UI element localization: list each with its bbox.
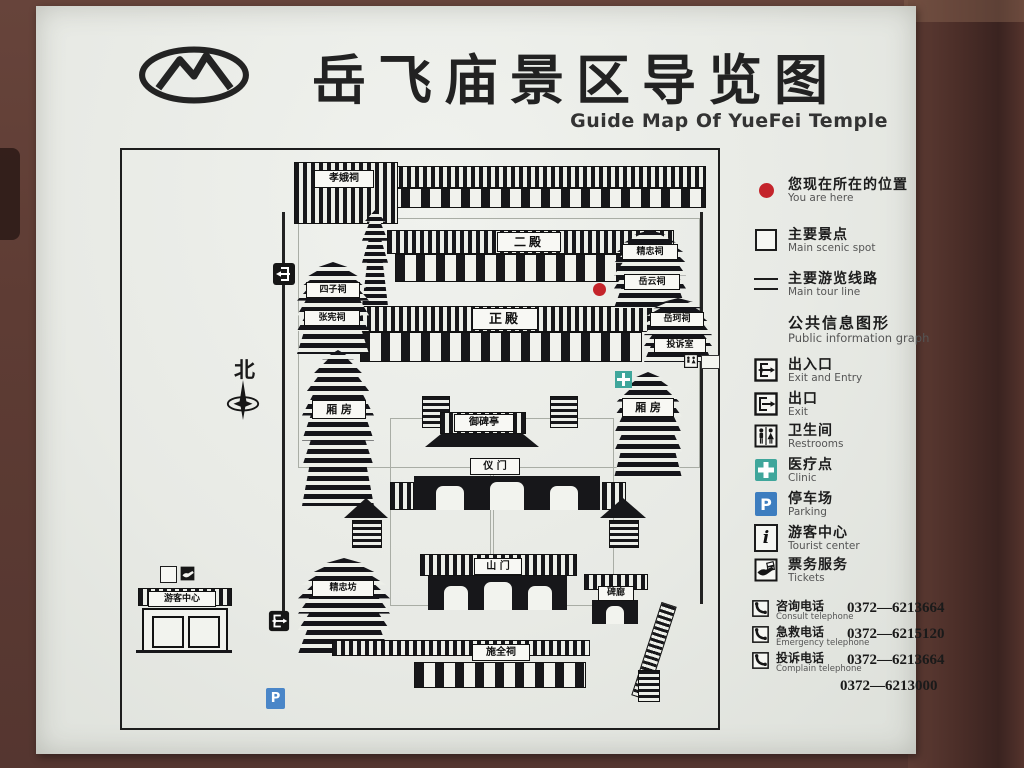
page-title-english: Guide Map Of YueFei Temple (570, 110, 888, 132)
legend-main-scenic-spot: 主要景点 Main scenic spot (754, 228, 875, 254)
temple-logo-mountain-icon (138, 44, 250, 106)
legend-cn: 停车场 (788, 492, 833, 507)
tickets-icon (754, 558, 778, 582)
flank-tower-east (550, 396, 578, 428)
exit-icon (754, 392, 778, 416)
building-shanmen-body (428, 576, 567, 610)
visitor-center-body (142, 608, 228, 652)
exit-entry-icon-map-south (268, 610, 290, 632)
pavilion-west-body (352, 520, 382, 548)
info-header-cn: 公共信息图形 (788, 316, 929, 332)
phone-emergency: 急救电话 Emergency telephone 0372—6215120 (752, 626, 945, 648)
photo-of-guide-map-sign: { "title": { "cn": "岳飞庙景区导览图", "en": "Gu… (0, 0, 1024, 768)
visitor-center-window-left (152, 616, 184, 648)
label-yuekeci: 岳珂祠 (650, 312, 704, 327)
phone-en: Emergency telephone (776, 639, 840, 648)
legend-en: Restrooms (788, 439, 844, 451)
compass-star-icon (224, 378, 262, 422)
phone-cn: 投诉电话 (776, 652, 840, 665)
legend-restrooms: 卫生间 Restrooms (754, 424, 844, 450)
phone-number-extra: 0372—6213000 (840, 678, 938, 695)
phone-en: Complain telephone (776, 665, 840, 674)
legend-cn: 主要景点 (788, 228, 875, 243)
phone-en: Consult telephone (776, 613, 840, 622)
phone-cn: 咨询电话 (776, 600, 840, 613)
phone-number: 0372—6213664 (847, 600, 945, 617)
legend-en: Clinic (788, 473, 833, 485)
legend-cn: 出入口 (788, 358, 862, 373)
info-icon-map (160, 566, 177, 583)
label-xiangfang-east: 厢 房 (622, 398, 674, 417)
label-zhangxianci: 张宪祠 (304, 310, 360, 326)
exit-icon-map-west (272, 262, 296, 286)
map-note-box (701, 355, 720, 369)
label-shanmen: 山 门 (474, 558, 522, 575)
legend-en: Tickets (788, 573, 848, 585)
label-jingzhongfang: 精忠坊 (312, 580, 374, 597)
shanmen-arch-right (528, 586, 552, 610)
parking-icon-map: P (266, 688, 285, 709)
legend-en: Exit (788, 407, 818, 419)
label-sizici: 四子祠 (306, 282, 360, 298)
label-eastgate: 碑廊 (598, 586, 634, 601)
yimen-arch-right (550, 486, 578, 510)
label-yueyunci: 岳云祠 (624, 274, 680, 290)
legend-en: Tourist center (788, 541, 860, 553)
legend-cn: 游客中心 (788, 526, 860, 541)
phone-icon (752, 600, 769, 617)
legend-en: Exit and Entry (788, 373, 862, 385)
yimen-arch-left (436, 486, 464, 510)
pavilion-east (600, 498, 646, 550)
legend-parking: P 停车场 Parking (754, 492, 833, 518)
sign-frame-scuff-mark (0, 148, 20, 240)
legend-you-are-here: 您现在所在的位置 You are here (754, 178, 908, 204)
label-zhengdian: 正殿 (472, 308, 538, 330)
yimen-arch-center (490, 482, 524, 510)
legend-cn: 票务服务 (788, 558, 848, 573)
sign-frame-corner-highlight (904, 0, 1024, 22)
eastgate-arch (606, 606, 624, 624)
legend-en: Main tour line (788, 287, 878, 299)
label-yimen: 仪 门 (470, 458, 520, 475)
legend-exit-entry: 出入口 Exit and Entry (754, 358, 862, 384)
building-shiquanci-body (414, 662, 586, 688)
legend-tickets: 票务服务 Tickets (754, 558, 848, 584)
legend-tourist-center: i 游客中心 Tourist center (754, 526, 860, 552)
legend-en: Main scenic spot (788, 243, 875, 255)
legend-cn: 您现在所在的位置 (788, 178, 908, 193)
restrooms-icon (754, 424, 778, 448)
shanmen-arch-left (444, 586, 468, 610)
legend-cn: 出口 (788, 392, 818, 407)
you-are-here-dot-map (593, 283, 606, 296)
phone-complain: 投诉电话 Complain telephone 0372—6213664 (752, 652, 945, 674)
exit-entry-icon (754, 358, 778, 382)
yimen-wing-west (390, 482, 414, 510)
tickets-icon-map (180, 566, 195, 581)
east-boundary-wall (700, 212, 703, 604)
legend-clinic: 医疗点 Clinic (754, 458, 833, 484)
phone-consult: 咨询电话 Consult telephone 0372—6213664 (752, 600, 945, 622)
pavilion-east-body (609, 520, 639, 548)
label-tousushi: 投诉室 (654, 338, 706, 353)
building-eastgate-body (592, 600, 638, 624)
phone-icon (752, 626, 769, 643)
legend-cn: 医疗点 (788, 458, 833, 473)
south-fence (332, 640, 590, 656)
scenic-spot-square-icon (755, 229, 777, 251)
pavilion-east-roof (600, 498, 646, 518)
phone-cn: 急救电话 (776, 626, 840, 639)
temple-map-canvas: 孝娥祠 二殿 正殿 四子祠 张宪祠 厢 房 精忠祠 岳云祠 岳珂祠 投诉室 厢 … (120, 148, 720, 730)
building-visitor-center: 游客中心 (136, 566, 234, 656)
tour-line-icon (754, 278, 778, 290)
guide-map-panel: 岳飞庙景区导览图 Guide Map Of YueFei Temple 孝娥祠 … (36, 6, 916, 754)
info-header-en: Public information graph (788, 332, 929, 345)
phone-number: 0372—6213664 (847, 652, 945, 669)
legend-info-header: 公共信息图形 Public information graph (788, 316, 929, 344)
phone-icon (752, 652, 769, 669)
legend-en: You are here (788, 193, 908, 205)
you-are-here-dot-icon (759, 183, 774, 198)
label-yubeiting: 御碑亭 (454, 414, 514, 432)
label-xiangfang-west: 厢 房 (312, 400, 366, 419)
legend-main-tour-line: 主要游览线路 Main tour line (754, 272, 878, 298)
pavilion-west-roof (344, 498, 388, 518)
southeast-wall-tower (638, 670, 660, 702)
pavilion-west (344, 498, 388, 550)
label-xiaoeci: 孝娥祠 (314, 170, 374, 188)
restrooms-icon-map (684, 354, 698, 368)
page-title-chinese: 岳飞庙景区导览图 (262, 36, 890, 115)
label-jingzhongci: 精忠祠 (622, 244, 678, 260)
legend-cn: 卫生间 (788, 424, 844, 439)
label-shiquanci: 施全祠 (472, 644, 530, 661)
building-zhengdian-body (360, 332, 642, 362)
info-icon: i (754, 524, 778, 552)
clinic-cross-icon-map (615, 371, 632, 388)
building-yimen-body (414, 476, 600, 510)
legend-en: Parking (788, 507, 833, 519)
phone-number: 0372—6215120 (847, 626, 945, 643)
clinic-cross-icon (754, 458, 778, 482)
shanmen-arch-center (484, 582, 512, 610)
parking-icon: P (755, 492, 777, 516)
visitor-center-window-right (188, 616, 220, 648)
legend-exit: 出口 Exit (754, 392, 818, 418)
label-visitor-center: 游客中心 (148, 591, 216, 607)
building-yubeiting-roof (425, 434, 539, 447)
legend-cn: 主要游览线路 (788, 272, 878, 287)
visitor-center-base (136, 650, 232, 653)
label-erdian: 二殿 (497, 232, 561, 252)
